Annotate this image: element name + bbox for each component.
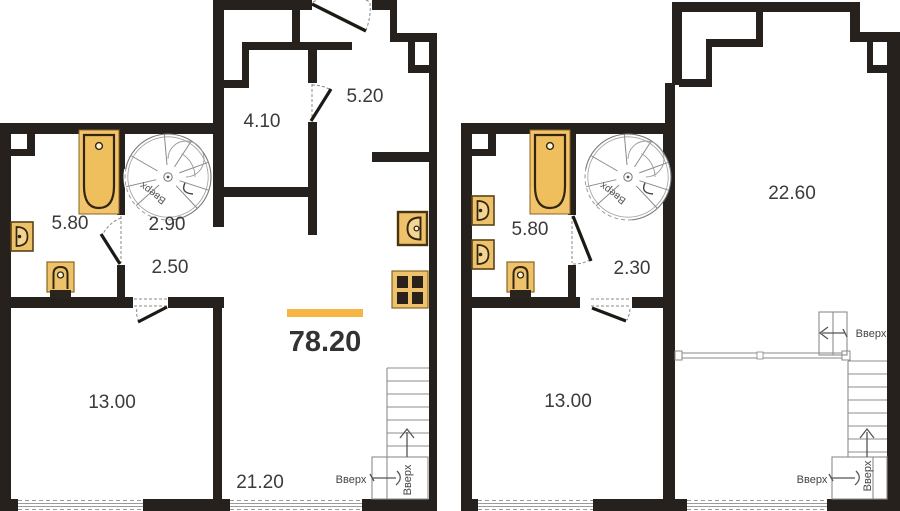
- room-label-13-00: 13.00: [544, 391, 592, 412]
- bathtub-icon: [79, 130, 119, 214]
- floor2-bathroom-door: [572, 216, 591, 264]
- up-label: Вверх: [856, 328, 887, 340]
- sink-icon: [11, 222, 33, 251]
- floor1-stairs-icon: [370, 368, 429, 499]
- up-label-rotated: Вверх: [862, 460, 874, 491]
- sink-icon: [472, 240, 494, 269]
- sink-icon: [472, 196, 494, 225]
- room-label-2-90: 2.90: [149, 214, 186, 235]
- floor1-entrance-door: [312, 0, 370, 31]
- floor2-walls: [461, 2, 900, 511]
- floor1-walls: [0, 0, 437, 511]
- up-label-rotated: Вверх: [402, 464, 414, 495]
- room-label-5-20: 5.20: [347, 86, 384, 107]
- floor2-stairs-icon: [829, 361, 887, 499]
- floor-plan-drawing: 78.20 4.10 5.20 5.80 2.90 2.50 13.00 21.…: [0, 0, 900, 511]
- floor2-plan: 5.80 2.30 22.60 13.00 Вверх Вверх Вверх …: [461, 2, 900, 511]
- room-label-13-00: 13.00: [88, 392, 136, 413]
- total-area-label: 78.20: [289, 326, 362, 358]
- spiral-stair-icon: [125, 134, 211, 220]
- room-label-21-20: 21.20: [236, 472, 284, 493]
- room-label-4-10: 4.10: [244, 111, 281, 132]
- up-label: Вверх: [336, 474, 367, 486]
- room-label-5-80: 5.80: [512, 219, 549, 240]
- spiral-stair-icon: [585, 134, 671, 220]
- floor1-plan: 78.20 4.10 5.20 5.80 2.90 2.50 13.00 21.…: [0, 0, 437, 511]
- total-area-bar: [287, 309, 363, 317]
- floor2-room1300-door: [591, 299, 631, 321]
- kitchen-sink-icon: [398, 212, 427, 245]
- toilet-icon: [47, 262, 74, 299]
- room-label-2-30: 2.30: [614, 258, 651, 279]
- floor-plan-page: 78.20 4.10 5.20 5.80 2.90 2.50 13.00 21.…: [0, 0, 900, 511]
- room-label-22-60: 22.60: [768, 183, 816, 204]
- floor1-room410-door: [311, 84, 331, 121]
- floor2-upper-stairs-icon: [819, 312, 847, 355]
- floor1-bathroom-door: [101, 216, 121, 264]
- floor1-room1300-door: [134, 299, 167, 322]
- stove-icon: [392, 271, 428, 308]
- bathtub-icon: [530, 130, 570, 214]
- toilet-icon: [507, 262, 534, 299]
- room-label-2-50: 2.50: [152, 257, 189, 278]
- room-label-5-80: 5.80: [52, 213, 89, 234]
- up-label: Вверх: [797, 474, 828, 486]
